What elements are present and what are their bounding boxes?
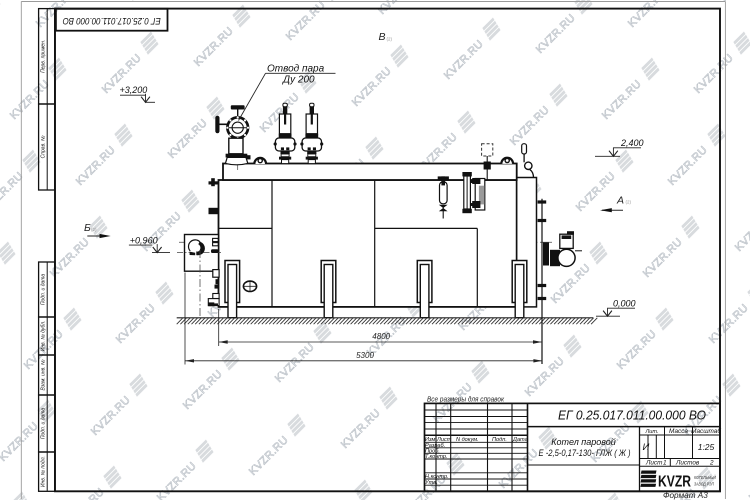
svg-text:Т.контр.: Т.контр. [425, 454, 448, 460]
svg-text:Утв.: Утв. [424, 480, 438, 486]
svg-text:А: А [616, 195, 624, 207]
svg-text:Масса: Масса [669, 428, 688, 435]
svg-text:В: В [379, 31, 386, 43]
svg-text:Отвод пара: Отвод пара [267, 64, 325, 75]
svg-text:Взам. инв. №: Взам. инв. № [41, 359, 47, 391]
svg-text:(2): (2) [626, 200, 632, 205]
svg-text:5300: 5300 [356, 351, 374, 360]
svg-text:1:25: 1:25 [698, 442, 715, 452]
svg-text:Инв. № дубл.: Инв. № дубл. [41, 321, 47, 352]
svg-text:КОТЕЛЬНЫЙ: КОТЕЛЬНЫЙ [694, 473, 717, 480]
svg-text:Формат А3: Формат А3 [663, 491, 708, 500]
svg-text:Листов: Листов [675, 460, 700, 467]
svg-text:Перв. примен.: Перв. примен. [41, 40, 47, 73]
svg-text:Лист: Лист [645, 460, 663, 467]
svg-text:2,400: 2,400 [620, 138, 644, 148]
svg-text:Лит.: Лит. [644, 429, 658, 435]
svg-text:Дата: Дата [512, 437, 528, 443]
svg-text:ЕГ 0.25.017.011.00.000 ВО: ЕГ 0.25.017.011.00.000 ВО [63, 16, 161, 26]
svg-text:Масштаб: Масштаб [691, 427, 721, 435]
svg-text:Подп. и дата: Подп. и дата [41, 274, 47, 306]
svg-text:4800: 4800 [372, 332, 390, 341]
svg-text:(2): (2) [91, 227, 97, 232]
svg-text:Справ. №: Справ. № [41, 135, 47, 158]
svg-text:Подп.: Подп. [492, 437, 507, 443]
svg-text:ЗАВОД РЭП: ЗАВОД РЭП [694, 482, 715, 487]
svg-text:KVZR: KVZR [658, 474, 691, 491]
svg-text:Ду 200: Ду 200 [282, 75, 315, 86]
svg-text:Инв. № подл.: Инв. № подл. [41, 456, 47, 487]
svg-text:0,000: 0,000 [613, 299, 636, 309]
svg-text:2: 2 [709, 460, 714, 467]
svg-text:Б: Б [84, 222, 91, 234]
svg-text:N докум.: N докум. [456, 437, 479, 443]
svg-text:1: 1 [663, 460, 667, 467]
svg-text:И: И [643, 442, 650, 453]
svg-text:(2): (2) [387, 37, 393, 42]
svg-text:ЕГ 0.25.017.011.00.000 ВО: ЕГ 0.25.017.011.00.000 ВО [558, 409, 706, 423]
svg-text:+3,200: +3,200 [120, 85, 148, 95]
svg-text:Е -2,5-0,17-130- ГЛЖ ( Ж ): Е -2,5-0,17-130- ГЛЖ ( Ж ) [539, 448, 631, 458]
svg-text:Все размеры для справок: Все размеры для справок [427, 395, 504, 404]
svg-text:Котел паровой: Котел паровой [551, 437, 616, 447]
svg-text:+0,960: +0,960 [130, 236, 158, 246]
svg-text:Подп. и дата: Подп. и дата [41, 408, 47, 440]
